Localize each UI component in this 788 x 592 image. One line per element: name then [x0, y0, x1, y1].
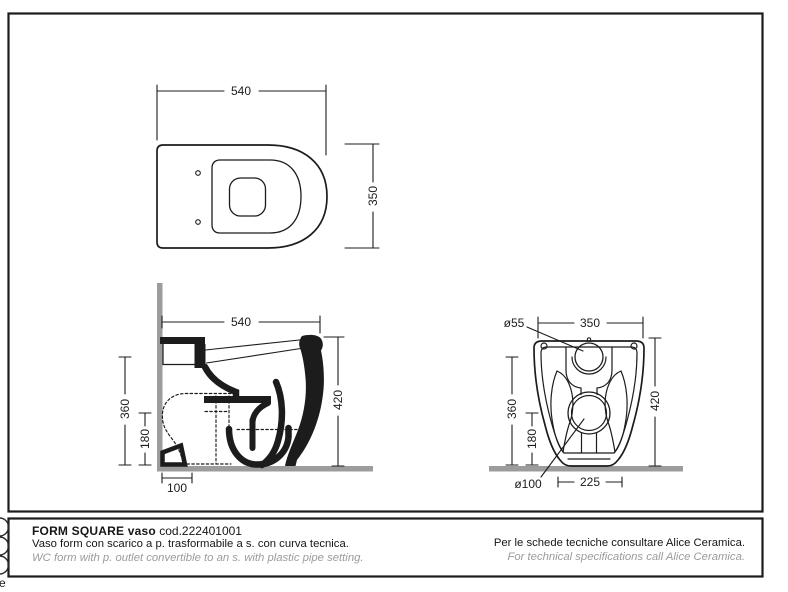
top-view-rim-outline	[212, 160, 301, 233]
side-view-wall	[157, 283, 163, 472]
front-view-top-hole	[587, 338, 590, 341]
top-view-fixing-hole	[196, 220, 201, 225]
side-view-360-label: 360	[118, 399, 132, 419]
side-view-180-label: 180	[138, 429, 152, 449]
product-name: FORM SQUARE vaso	[32, 524, 156, 538]
note-en: For technical specifications call Alice …	[494, 551, 745, 565]
front-view-body	[534, 338, 644, 466]
side-view-bracket	[160, 337, 205, 344]
side-view-100-label: 100	[167, 481, 187, 495]
note-it: Per le schede tecniche consultare Alice …	[494, 537, 745, 551]
side-view	[119, 283, 373, 483]
product-info: FORM SQUARE vaso cod.222401001 Vaso form…	[32, 524, 364, 565]
product-code: cod.222401001	[159, 524, 242, 538]
top-view-bowl-opening	[230, 178, 266, 216]
front-view-left-wing	[551, 371, 573, 452]
side-view-height-label: 420	[331, 390, 345, 410]
side-view-outlet-stub	[163, 446, 186, 465]
technical-drawing: e 540 350	[0, 0, 788, 592]
front-view-outlet-circle	[568, 392, 610, 434]
front-view-225-label: 225	[580, 475, 600, 489]
top-view-width-label: 540	[231, 84, 251, 98]
front-view-height-label: 420	[648, 391, 662, 411]
front-view-360-label: 360	[505, 399, 519, 419]
edge-letter: e	[0, 576, 6, 590]
top-view-depth-label: 350	[366, 186, 380, 206]
product-title-line: FORM SQUARE vaso cod.222401001	[32, 524, 364, 538]
spec-sheet: e 540 350	[0, 0, 788, 592]
description-it: Vaso form con scarico a p. trasformabile…	[32, 538, 364, 552]
contact-note: Per le schede tecniche consultare Alice …	[494, 537, 745, 564]
front-view-180-label: 180	[525, 429, 539, 449]
edge-circle	[0, 556, 9, 574]
side-view-body	[160, 335, 324, 466]
description-en: WC form with p. outlet convertible to an…	[32, 552, 364, 566]
front-view-width-label: 350	[580, 316, 600, 330]
outlet-diameter-label: ø100	[514, 477, 542, 491]
top-view-fixing-hole	[196, 171, 201, 176]
drawing-frame	[9, 14, 763, 512]
edge-circle	[0, 537, 9, 555]
edge-binding-marks	[0, 518, 9, 574]
inlet-diameter-label: ø55	[504, 316, 525, 330]
top-view	[157, 85, 379, 248]
edge-circle	[0, 518, 9, 536]
side-view-back-profile	[285, 335, 324, 466]
side-view-width-label: 540	[231, 315, 251, 329]
front-view-right-wing	[605, 371, 627, 452]
